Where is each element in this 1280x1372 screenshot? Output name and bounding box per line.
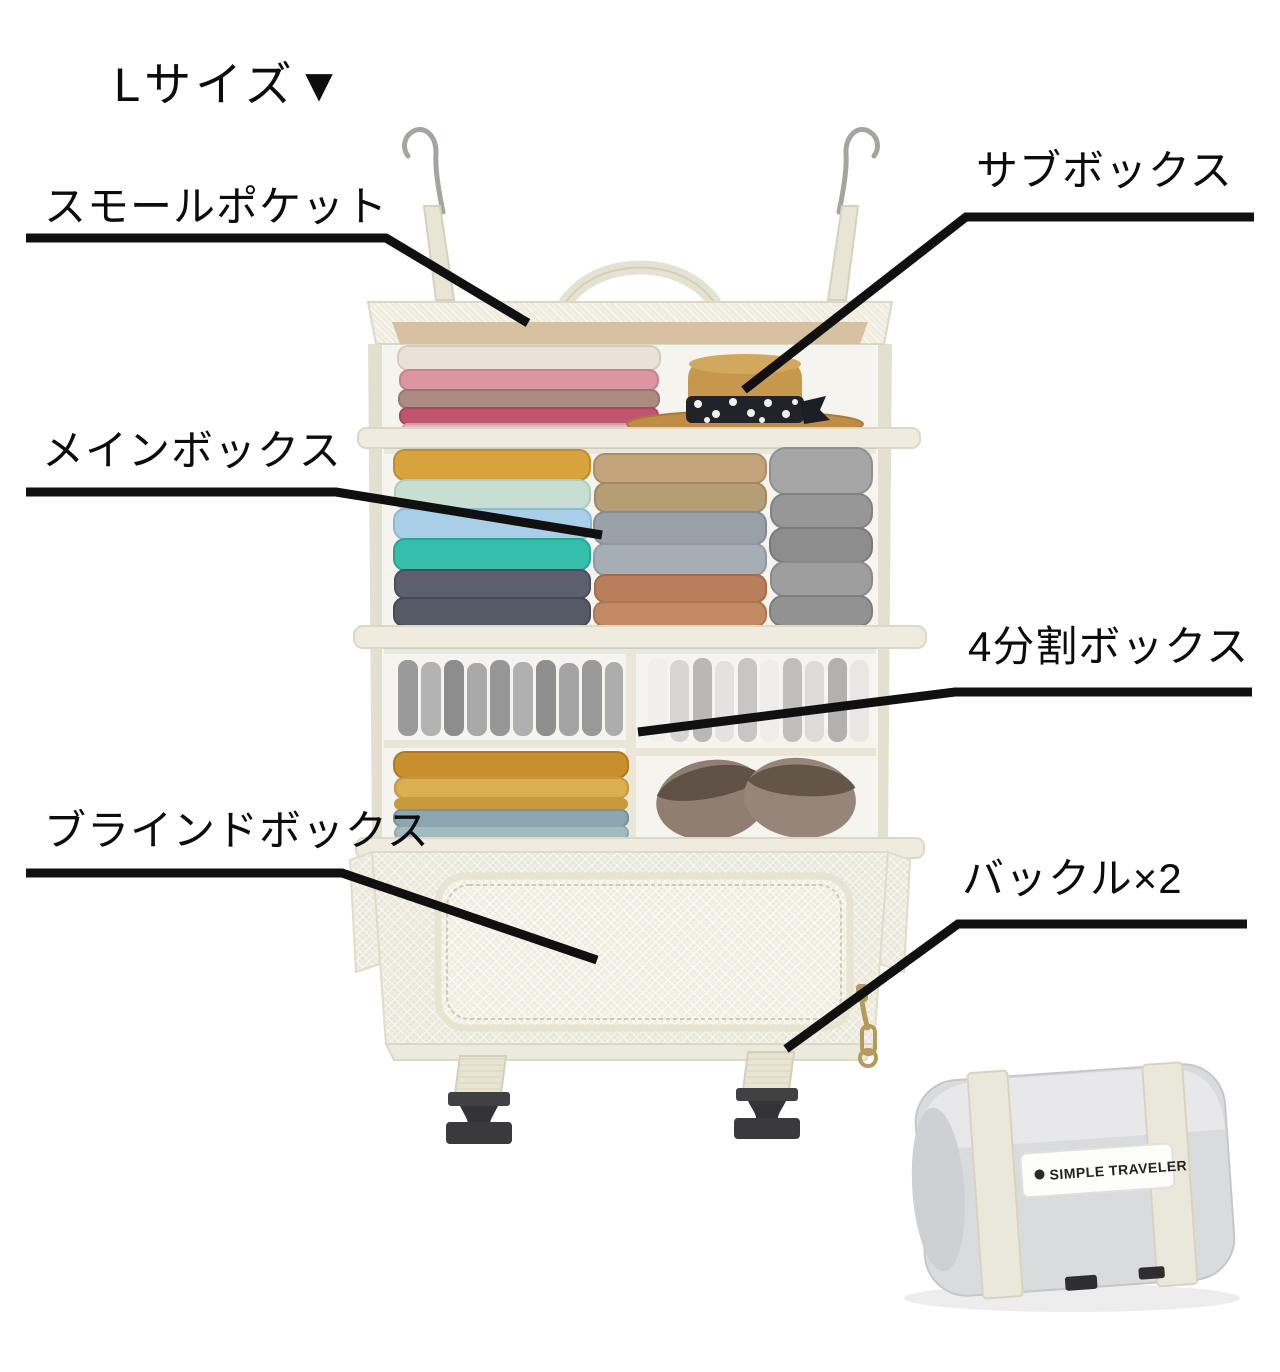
label-main-box: メインボックス — [42, 428, 342, 474]
callout-line-main-box — [26, 492, 602, 535]
product-annotation-page: SIMPLE TRAVELER Lサイズ▼ スモールポケット サブボックス メイ… — [0, 0, 1280, 1372]
callout-line-small-pocket — [26, 238, 528, 323]
callout-line-buckle — [786, 924, 1247, 1049]
label-quad-box: 4分割ボックス — [968, 624, 1249, 670]
label-small-pocket: スモールポケット — [44, 184, 388, 230]
size-label: Lサイズ▼ — [114, 46, 346, 115]
label-blind-box: ブラインドボックス — [44, 808, 430, 854]
callout-line-quad-box — [638, 692, 1252, 732]
callout-line-sub-box — [744, 217, 1254, 390]
callout-line-blind-box — [26, 873, 597, 960]
label-buckle-x2: バックル×2 — [962, 856, 1183, 902]
label-sub-box: サブボックス — [976, 148, 1233, 194]
